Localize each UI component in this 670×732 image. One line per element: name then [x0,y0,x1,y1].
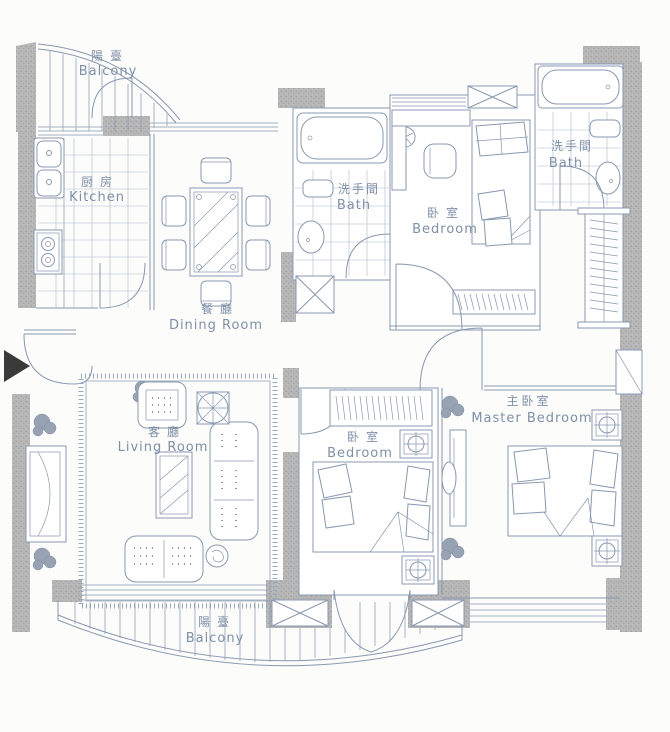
tv-cabinet-master [442,430,466,526]
column-marker [400,430,432,458]
room-label-balcony-top-en: Balcony [79,65,138,80]
room-label-balcony-top-zh: 陽臺 [91,50,129,64]
room-label-balcony-bottom-zh: 陽臺 [198,616,236,630]
side-table [206,545,228,567]
room-label-kitchen-zh: 厨房 [81,176,119,190]
corner-plant [197,392,229,424]
room-label-bedroom-1-zh: 卧室 [427,207,465,221]
room-label-master-en: Master Bedroom [471,412,592,427]
room-label-kitchen-en: Kitchen [69,191,125,206]
column-marker [592,410,622,440]
living-room-window [82,585,268,600]
dining-top-window [150,123,278,131]
kitchen-balcony-window [38,127,103,135]
master-closet [578,208,630,328]
kitchen-dining-door [100,263,145,308]
bath-2-toilet [596,162,620,194]
room-label-living-zh: 客廳 [148,426,186,440]
bedroom-2-closet [330,390,432,426]
room-label-living-en: Living Room [118,441,209,456]
room-label-bath-1-en: Bath [337,199,371,214]
room-label-bath-2-zh: 洗手間 [551,140,593,154]
x-box [296,276,334,313]
column-marker [592,536,622,566]
room-label-balcony-bottom-en: Balcony [186,632,245,647]
room-label-bedroom-2-en: Bedroom [327,447,393,462]
room-label-bedroom-2-zh: 卧室 [347,431,385,445]
tv-cabinet-left [26,446,66,542]
coffee-table [156,452,192,518]
left-plant-top [33,414,56,436]
master-plant-bottom [441,538,464,560]
kitchen-sink [34,138,64,198]
room-label-bedroom-1-en: Bedroom [412,223,478,238]
bottom-balcony [58,590,462,666]
room-label-master-zh: 主卧室 [506,395,551,409]
x-box [272,600,328,626]
x-box [412,600,464,626]
column-marker [402,556,434,584]
master-bed [508,446,622,536]
bedroom-1-desk [392,110,470,126]
room-label-bath-2-en: Bath [549,157,583,172]
bedroom-1-window-radiator [453,290,535,314]
floor-plan-drawing [0,0,670,732]
left-plant-bottom [33,548,56,570]
kitchen-stove [34,230,62,274]
right-wall-window [616,350,642,394]
room-label-dining-en: Dining Room [169,319,263,334]
kitchen [34,138,148,308]
bath-2-sink [590,120,620,137]
sofa-right [210,422,258,540]
master-plant-top [441,396,464,418]
room-label-bath-1-zh: 洗手間 [338,183,380,197]
bath-1-sink [303,180,333,197]
balcony-kitchen-door [92,78,132,118]
room-label-dining-zh: 餐廳 [201,303,239,317]
entry-arrow-icon [4,350,30,382]
master-bedroom-door [420,328,482,390]
floor-plan: 陽臺 Balcony 厨房 Kitchen 餐廳 Dining Room 洗手間… [0,0,670,732]
loveseat [125,536,203,582]
bath-1-tub [297,113,387,163]
dining-table [190,188,242,276]
bedroom-2-bed [313,462,433,552]
bath-2-tub [538,66,623,108]
master-bedroom-window [470,604,606,622]
armchair [138,382,186,428]
living-room [26,376,275,606]
x-box [468,86,517,108]
bath-1-toilet [298,221,324,253]
bedroom-1-chair [424,144,456,178]
dining-room [162,158,270,306]
balcony-french-doors [334,590,410,652]
